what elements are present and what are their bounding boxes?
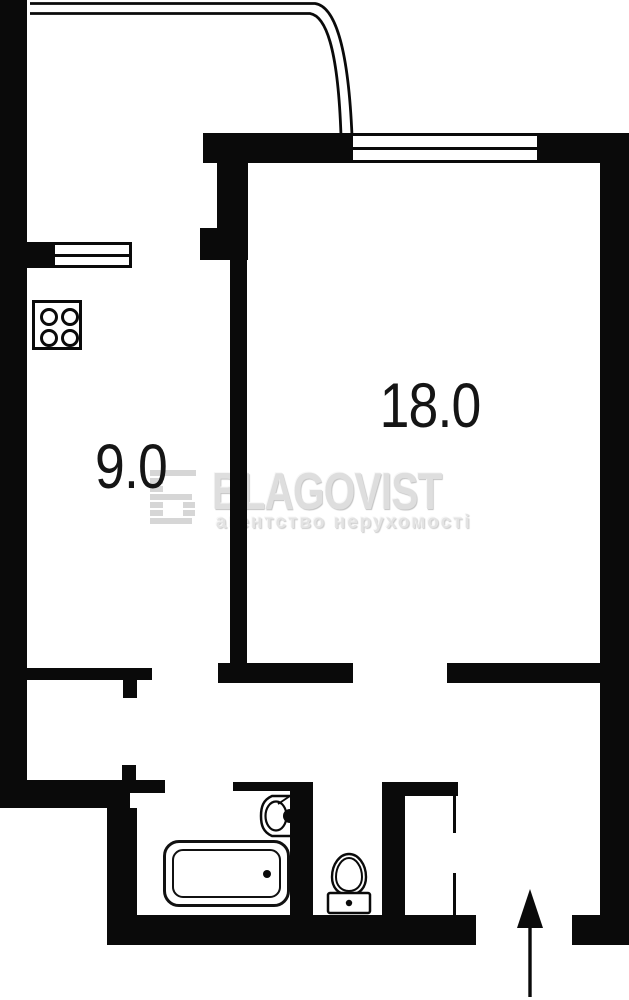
wall-kitchen-door-jamb xyxy=(123,680,137,698)
wall-left xyxy=(0,0,27,808)
toilet-icon xyxy=(324,851,374,917)
wall-wc-right xyxy=(382,782,405,915)
bathtub-icon xyxy=(163,840,290,907)
wall-closet-right-lower xyxy=(453,873,456,915)
wall-right xyxy=(600,133,629,945)
wall-bathroom-divider xyxy=(290,782,313,915)
wall-bottom-right-segment xyxy=(572,915,629,945)
watermark-tagline-text: агентство нерухомості xyxy=(216,513,472,532)
floor-plan: 9.0 18.0 BLAGOVIST агентство нерухомості xyxy=(0,0,629,1000)
sink-icon xyxy=(258,793,292,839)
living-room-window xyxy=(353,133,537,163)
wall-middle-upper xyxy=(217,133,248,260)
wall-kitchen-bottom xyxy=(27,668,152,680)
wall-livingroom-bottom-right xyxy=(447,663,603,683)
wall-middle-door-jamb xyxy=(200,228,217,260)
balcony-outline xyxy=(27,0,367,140)
kitchen-area-label: 9.0 xyxy=(80,437,182,497)
wall-closet-right-upper xyxy=(453,793,456,833)
stove-burner xyxy=(40,308,58,326)
wall-livingroom-bottom-left xyxy=(218,663,353,683)
wall-kitchen-window-pier xyxy=(27,242,52,268)
window-glazing-line xyxy=(55,254,129,257)
watermark: BLAGOVIST агентство нерухомості xyxy=(148,466,493,538)
kitchen-window xyxy=(52,242,132,268)
wall-closet-top-bar xyxy=(382,782,458,796)
stove-burner xyxy=(61,329,79,347)
wall-hall-bottom-left-chunk xyxy=(0,780,130,808)
wall-hall-bottom-thin xyxy=(130,780,165,793)
stove-burner xyxy=(40,329,58,347)
wall-middle xyxy=(230,260,247,663)
wall-bottom-left-segment xyxy=(107,915,476,945)
bathtub-drain xyxy=(263,870,271,878)
window-glazing-line xyxy=(353,147,537,150)
entrance-arrow-icon xyxy=(514,884,546,1000)
stove-icon xyxy=(32,300,82,350)
stove-burner xyxy=(61,308,79,326)
living-room-area-label: 18.0 xyxy=(379,376,481,436)
wall-hall-door-jamb xyxy=(122,765,136,780)
